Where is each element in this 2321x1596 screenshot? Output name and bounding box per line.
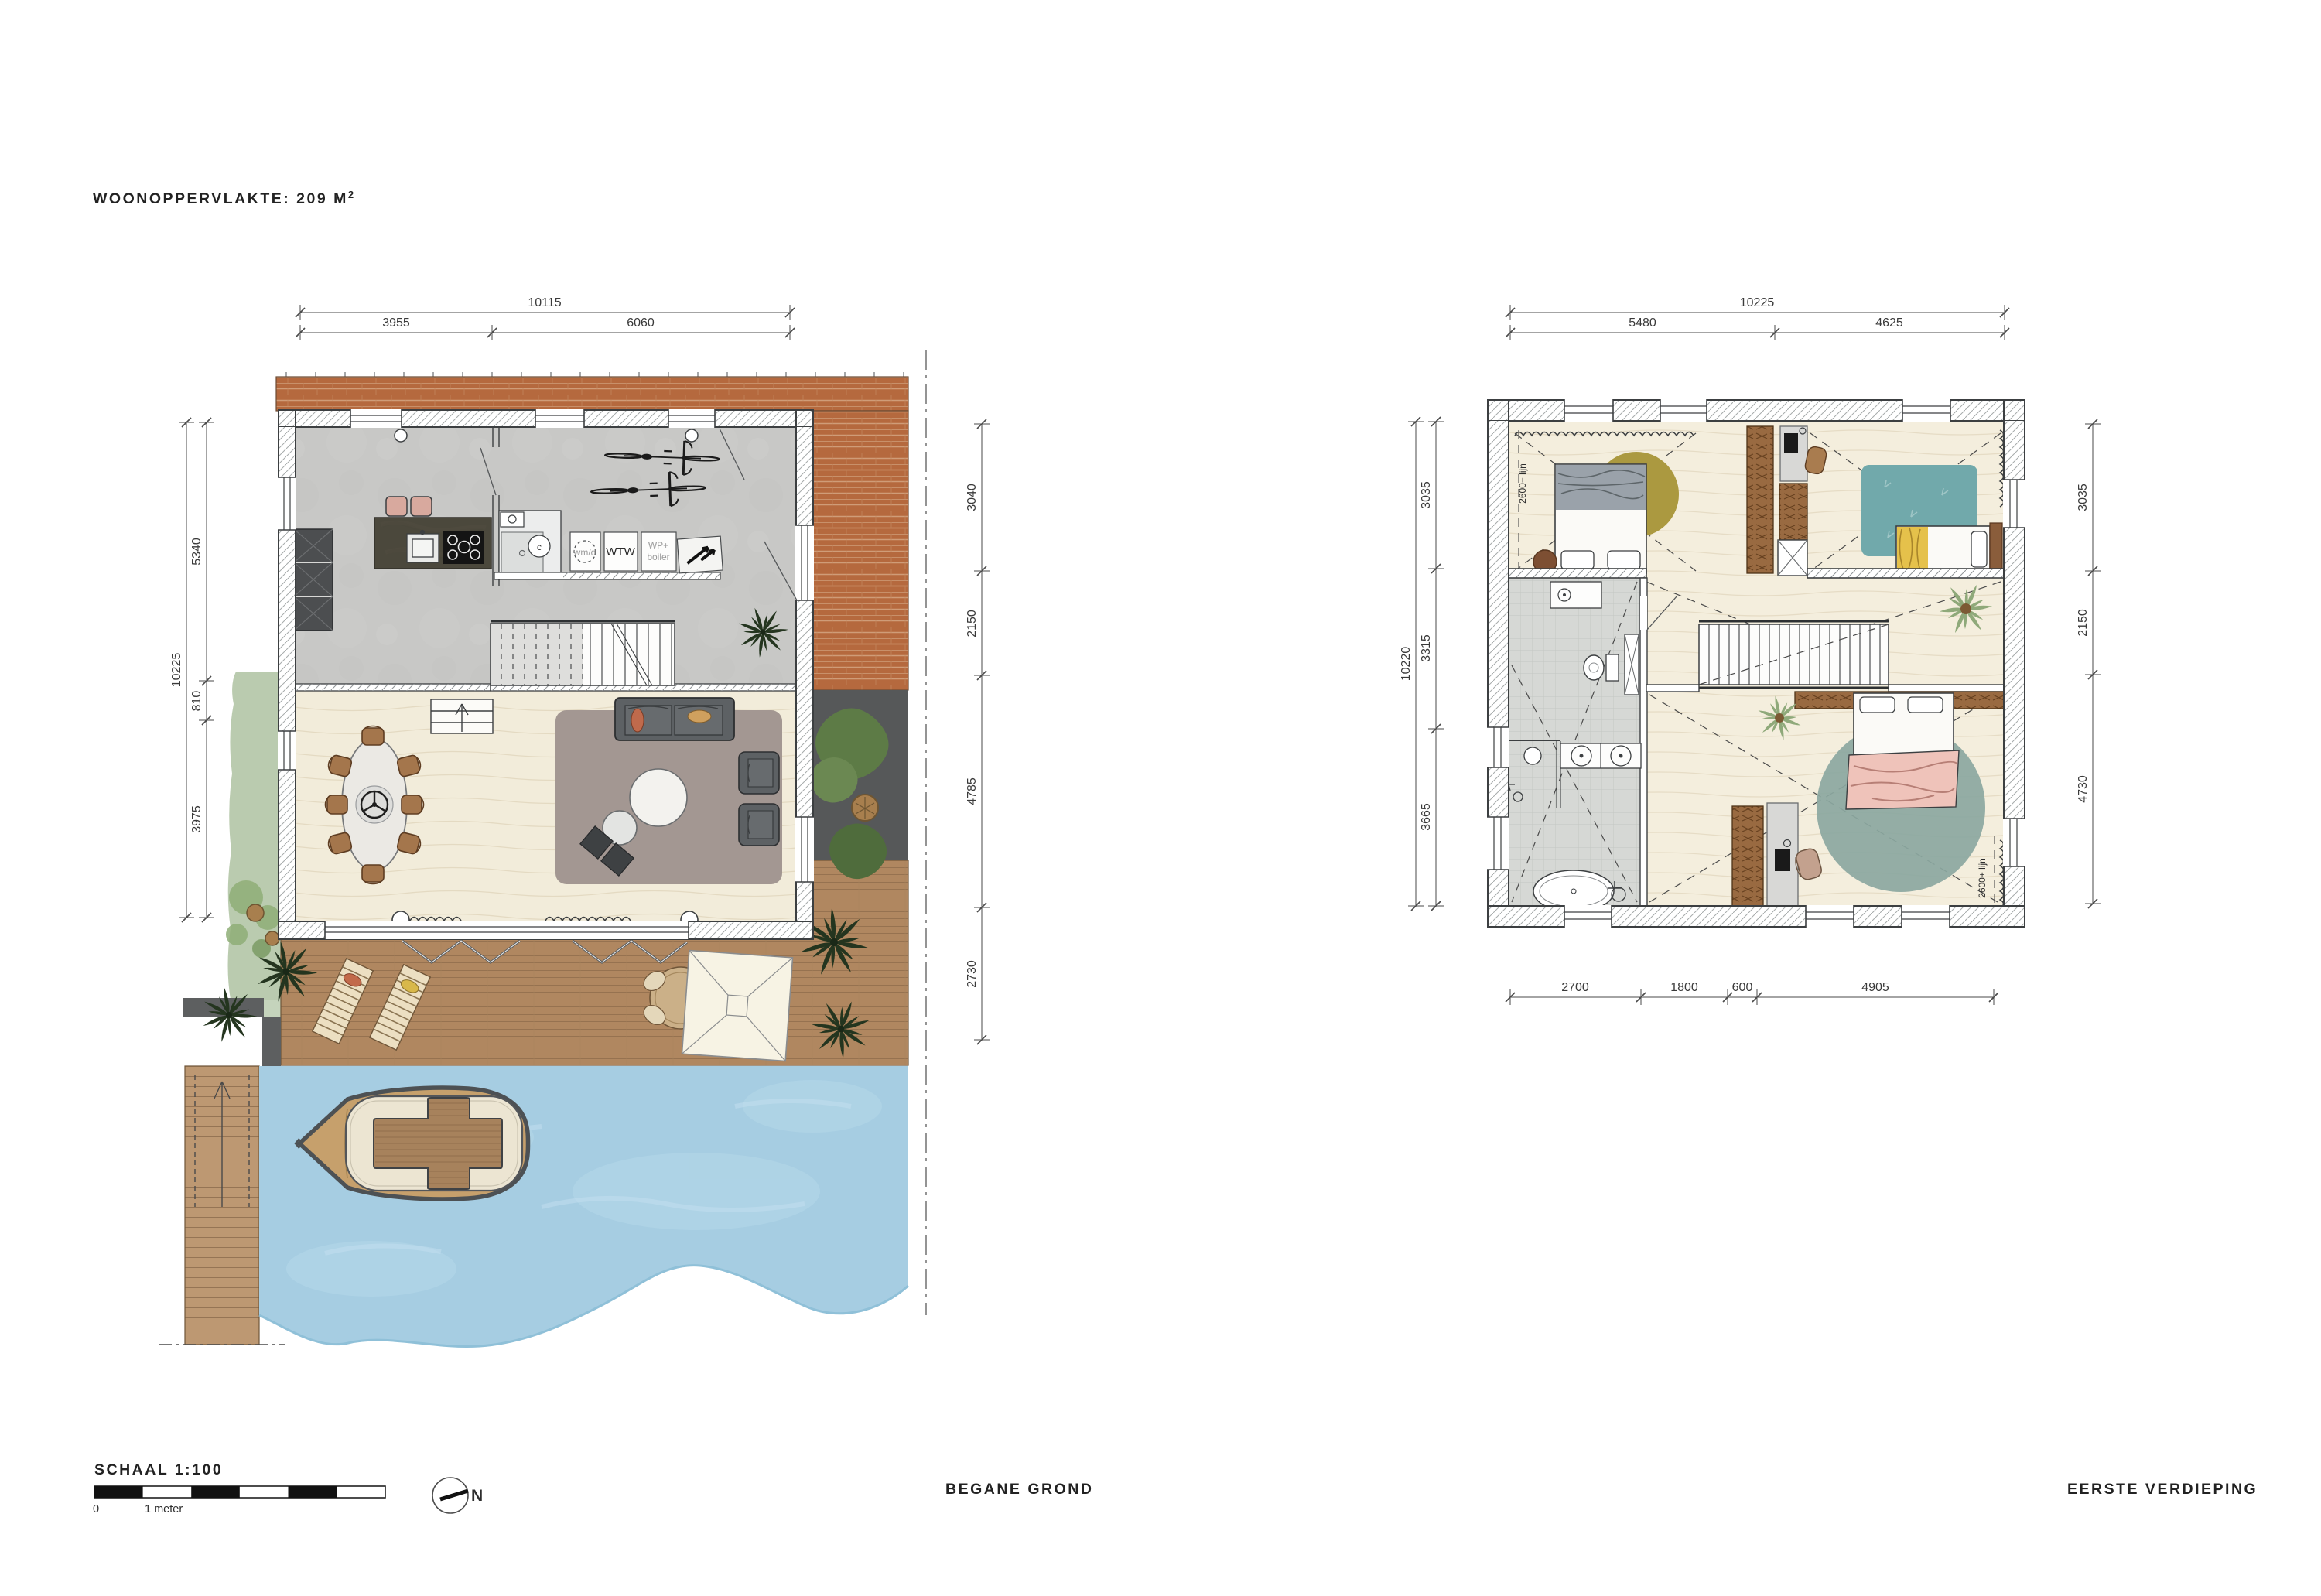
svg-text:5340: 5340	[190, 538, 203, 566]
svg-text:3975: 3975	[190, 805, 203, 833]
svg-text:3035: 3035	[2077, 484, 2090, 511]
svg-text:1800: 1800	[1670, 981, 1698, 994]
svg-text:810: 810	[190, 691, 203, 712]
svg-text:boiler: boiler	[647, 552, 669, 562]
svg-text:5480: 5480	[1629, 316, 1656, 330]
svg-text:1 meter: 1 meter	[145, 1503, 183, 1516]
svg-text:3955: 3955	[382, 316, 410, 330]
svg-text:2700: 2700	[1561, 981, 1589, 994]
svg-text:3665: 3665	[1420, 803, 1433, 831]
svg-text:4785: 4785	[966, 777, 979, 805]
svg-text:2730: 2730	[966, 960, 979, 988]
svg-text:2600+ lijn: 2600+ lijn	[1977, 858, 1988, 898]
svg-text:wm/d: wm/d	[573, 547, 596, 558]
svg-text:4625: 4625	[1875, 316, 1903, 330]
svg-text:6060: 6060	[627, 316, 655, 330]
svg-text:10225: 10225	[170, 653, 183, 688]
svg-text:2600+ lijn: 2600+ lijn	[1517, 463, 1528, 504]
svg-text:0: 0	[93, 1503, 99, 1516]
svg-text:3035: 3035	[1420, 481, 1433, 509]
svg-text:600: 600	[1732, 981, 1753, 994]
svg-text:3315: 3315	[1420, 634, 1433, 662]
svg-text:10115: 10115	[528, 296, 561, 309]
svg-text:WP+: WP+	[648, 540, 668, 551]
svg-text:EERSTE VERDIEPING: EERSTE VERDIEPING	[2067, 1481, 2258, 1498]
svg-text:SCHAAL 1:100: SCHAAL 1:100	[94, 1461, 223, 1478]
svg-text:BEGANE GROND: BEGANE GROND	[945, 1481, 1093, 1498]
svg-text:WOONOPPERVLAKTE: 209 M2: WOONOPPERVLAKTE: 209 M2	[93, 189, 356, 207]
svg-text:WTW: WTW	[606, 545, 635, 559]
svg-text:2150: 2150	[2077, 609, 2090, 637]
svg-text:10220: 10220	[1400, 647, 1413, 682]
svg-text:3040: 3040	[966, 484, 979, 511]
svg-text:N: N	[471, 1487, 483, 1505]
svg-text:4730: 4730	[2077, 775, 2090, 803]
svg-text:4905: 4905	[1861, 981, 1889, 994]
svg-text:2150: 2150	[966, 610, 979, 637]
svg-text:c: c	[537, 542, 542, 552]
svg-text:10225: 10225	[1740, 296, 1775, 309]
